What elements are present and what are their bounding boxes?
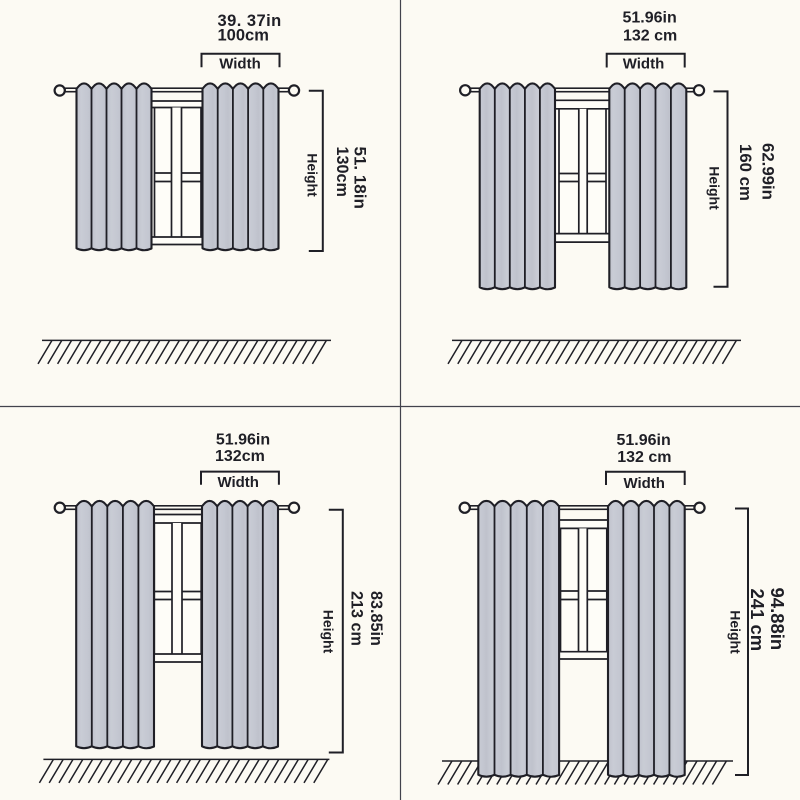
svg-text:Height: Height — [707, 166, 723, 210]
svg-text:Height: Height — [305, 153, 321, 197]
svg-text:241 cm: 241 cm — [747, 589, 768, 652]
svg-text:160 cm: 160 cm — [736, 144, 755, 201]
svg-text:130cm: 130cm — [333, 147, 351, 197]
svg-text:Width: Width — [623, 475, 665, 492]
svg-text:213 cm: 213 cm — [348, 591, 366, 646]
svg-text:132 cm: 132 cm — [617, 449, 671, 466]
svg-text:51. 18in: 51. 18in — [351, 147, 370, 209]
svg-text:Width: Width — [219, 56, 261, 73]
svg-text:51.96in: 51.96in — [216, 432, 270, 449]
svg-text:51.96in: 51.96in — [617, 432, 671, 449]
svg-text:Height: Height — [321, 610, 337, 654]
svg-text:51.96in: 51.96in — [623, 10, 677, 27]
svg-text:Width: Width — [623, 56, 665, 73]
svg-text:100cm: 100cm — [218, 27, 269, 45]
svg-text:83.85in: 83.85in — [367, 591, 385, 646]
svg-text:62.99in: 62.99in — [759, 143, 778, 200]
svg-text:132 cm: 132 cm — [623, 27, 677, 44]
svg-text:132cm: 132cm — [215, 448, 265, 465]
svg-text:Width: Width — [217, 474, 259, 491]
svg-text:94.88in: 94.88in — [767, 588, 788, 651]
svg-text:Height: Height — [728, 610, 744, 654]
